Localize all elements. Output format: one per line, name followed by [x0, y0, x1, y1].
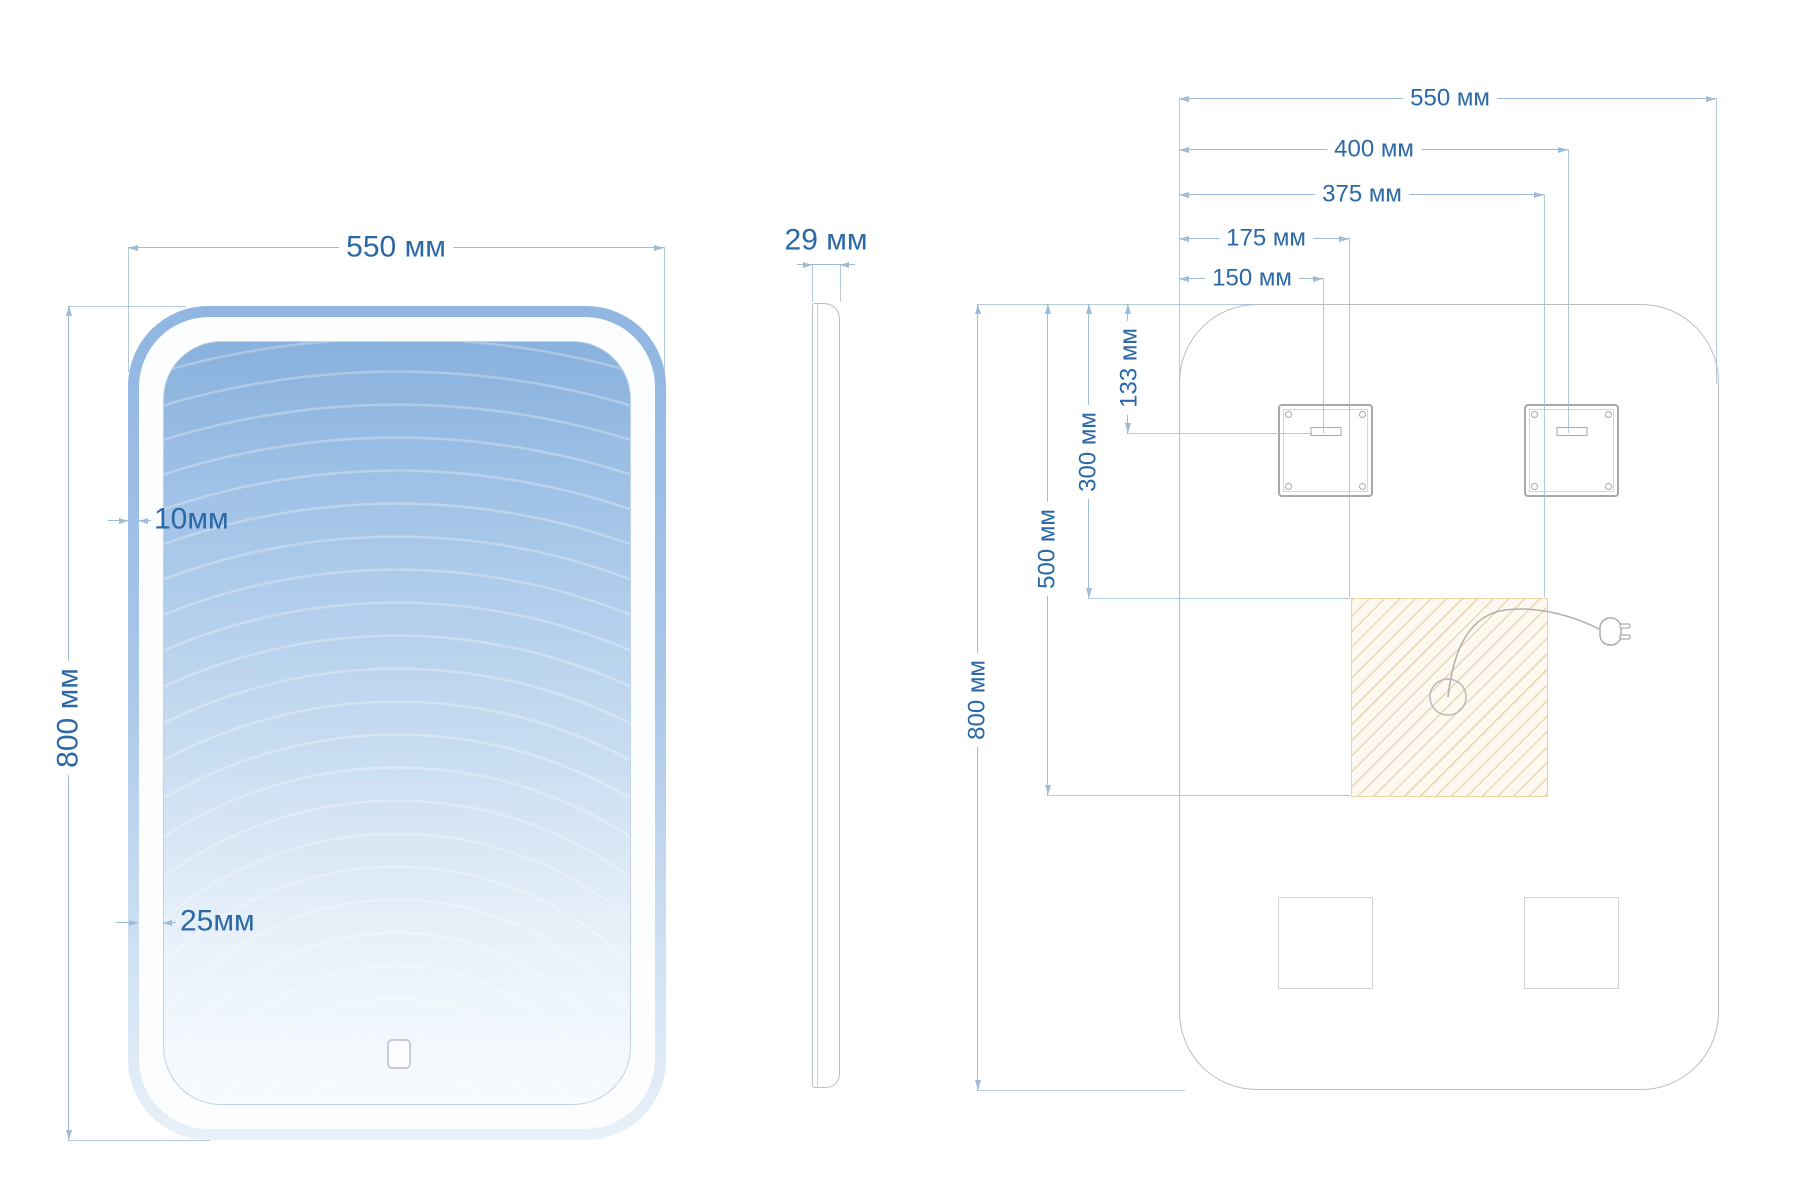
- tick-depth-right: [840, 264, 855, 265]
- extension-line: [1349, 238, 1350, 597]
- tick-frame-width-right: [139, 520, 151, 521]
- extension-line: [840, 264, 841, 302]
- keyhole-slot: [1310, 427, 1341, 436]
- dim-back-height-label: 800 мм: [964, 653, 989, 747]
- screw-icon: [1285, 483, 1292, 490]
- dim-frame-width-label: 10мм: [154, 503, 229, 535]
- extension-line: [1323, 278, 1324, 433]
- keyhole-slot: [1556, 427, 1587, 436]
- extension-line: [812, 264, 813, 302]
- screw-icon: [1605, 483, 1612, 490]
- tick-led-width-left: [116, 922, 138, 923]
- dim-depth-label: 29 мм: [778, 224, 875, 256]
- dim-back-width-label: 550 мм: [1403, 85, 1497, 110]
- back-panel: [1179, 304, 1719, 1090]
- driver-box-left: [1278, 897, 1373, 989]
- dim-led-width-label: 25мм: [180, 905, 255, 937]
- screw-icon: [1359, 411, 1366, 418]
- screw-icon: [1359, 483, 1366, 490]
- mounting-bracket-right: [1524, 404, 1619, 497]
- side-profile: [812, 303, 840, 1088]
- dim-375-label: 375 мм: [1315, 181, 1409, 206]
- extension-line: [1088, 598, 1350, 599]
- glass-layer-line: [817, 304, 818, 1087]
- driver-box-right: [1524, 897, 1619, 989]
- extension-line: [68, 1140, 210, 1141]
- extension-line: [1127, 433, 1312, 434]
- screw-icon: [1605, 411, 1612, 418]
- extension-line: [1716, 98, 1717, 384]
- extension-line: [68, 306, 186, 307]
- tick-depth-left: [797, 264, 812, 265]
- screw-icon: [1531, 411, 1538, 418]
- dim-133-label: 133 мм: [1116, 321, 1141, 415]
- extension-line: [977, 304, 1254, 305]
- extension-line: [1047, 795, 1350, 796]
- screw-icon: [1531, 483, 1538, 490]
- dim-depth-line: [812, 264, 840, 265]
- extension-line: [1568, 149, 1569, 433]
- mounting-bracket-left: [1278, 404, 1373, 497]
- dim-front-height-label: 800 мм: [52, 661, 84, 775]
- extension-line: [664, 247, 665, 372]
- junction-hatch-area: [1351, 598, 1548, 797]
- dim-front-width-label: 550 мм: [339, 231, 453, 263]
- mirror-technical-drawing: 550 мм 800 мм 10мм 25мм 29 мм: [0, 0, 1800, 1200]
- dim-300-label: 300 мм: [1075, 405, 1100, 499]
- dim-400-label: 400 мм: [1327, 136, 1421, 161]
- tick-led-width-right: [163, 922, 176, 923]
- touch-sensor-button: [387, 1039, 411, 1069]
- extension-line: [1544, 194, 1545, 597]
- front-frame-led-bezel: [128, 306, 666, 1140]
- mirror-surface: [163, 341, 631, 1105]
- dim-175-label: 175 мм: [1219, 225, 1313, 250]
- extension-line: [977, 1090, 1185, 1091]
- dim-500-label: 500 мм: [1034, 502, 1059, 596]
- extension-line: [128, 247, 129, 372]
- tick-frame-width-left: [108, 520, 128, 521]
- screw-icon: [1285, 411, 1292, 418]
- dim-150-label: 150 мм: [1205, 265, 1299, 290]
